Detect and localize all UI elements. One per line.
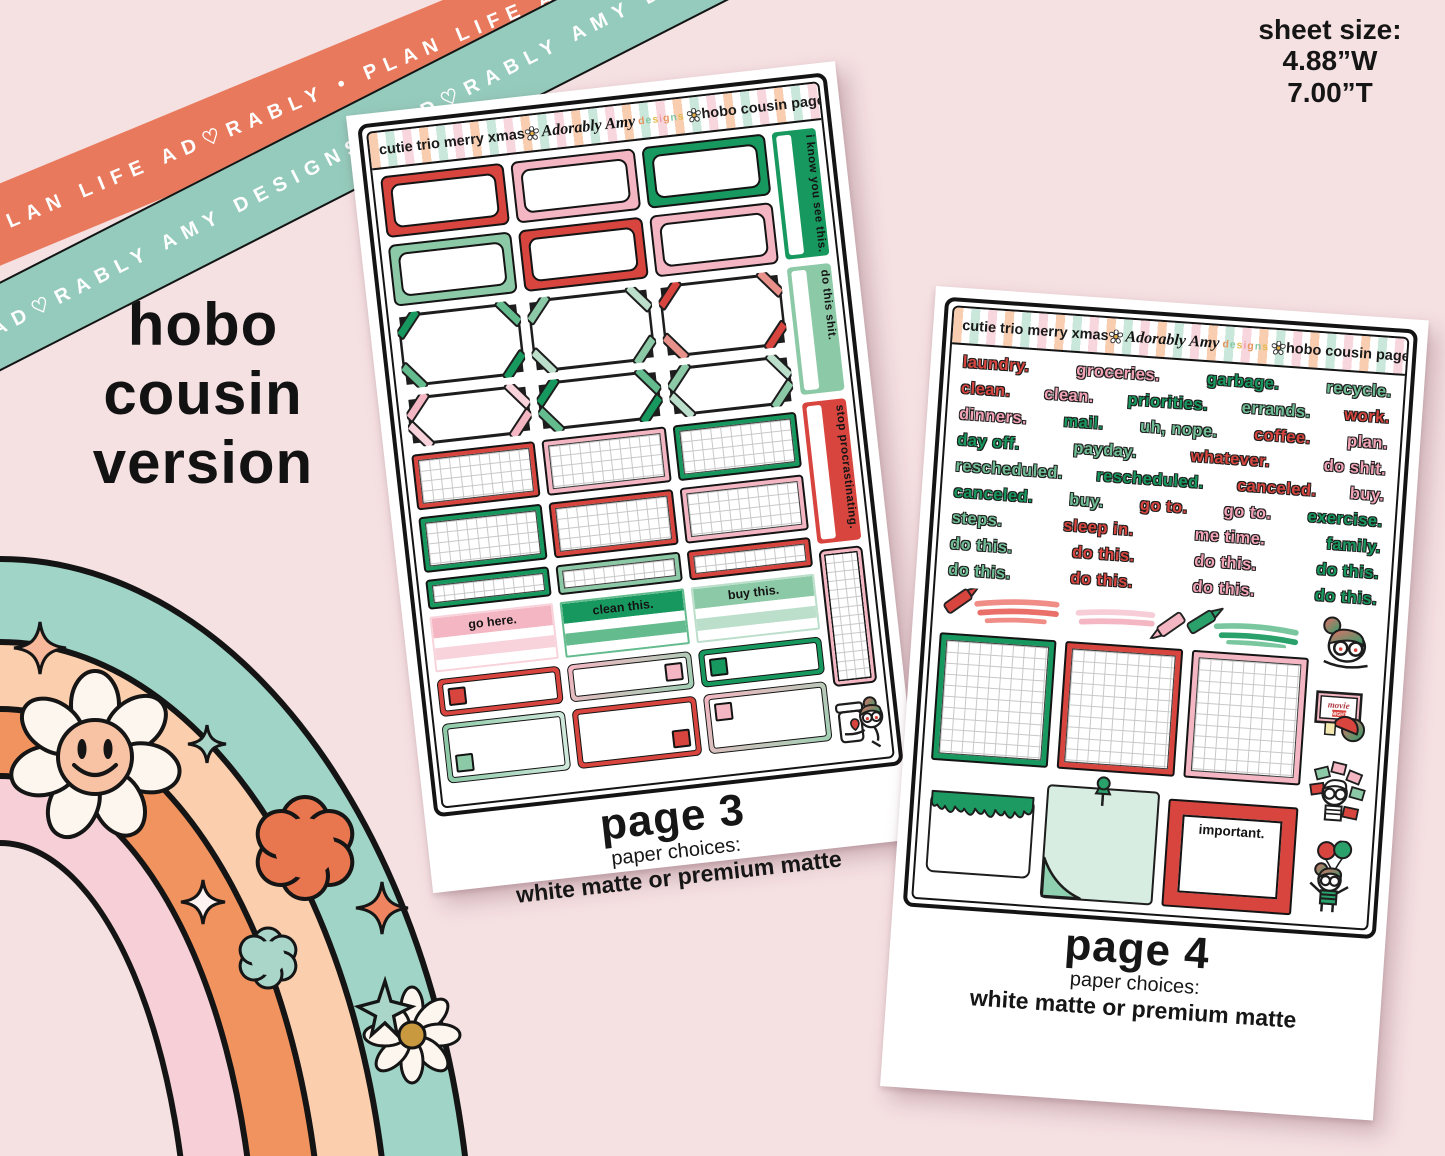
pushpin-icon xyxy=(1089,775,1117,809)
word-sticker: clean. xyxy=(960,379,1011,401)
word-sticker: do this. xyxy=(1316,560,1380,583)
daisy-icon xyxy=(1272,340,1287,355)
photo-corner-box-green xyxy=(395,300,527,389)
word-sticker: do this. xyxy=(949,535,1013,558)
word-sticker: exercise. xyxy=(1307,508,1383,532)
word-sticker: do this. xyxy=(948,561,1012,584)
grid-box-pink xyxy=(679,474,809,544)
checkbox-square xyxy=(713,702,733,722)
side-strip-text: i know you see this. xyxy=(802,128,828,257)
word-sticker: do this. xyxy=(1314,586,1378,609)
grid-box-red xyxy=(549,489,679,559)
word-sticker: family. xyxy=(1326,535,1382,558)
curled-corner xyxy=(1039,856,1084,901)
word-sticker: me time. xyxy=(1194,526,1266,550)
word-sticker: day off. xyxy=(957,431,1021,454)
product-image: PLAN LIFE AD♡RABLY • PLAN LIFE AD♡RABL A… xyxy=(0,0,1445,1156)
daisy-icon xyxy=(524,125,539,140)
word-sticker: do this. xyxy=(1072,543,1136,566)
word-sticker: canceled. xyxy=(953,483,1034,508)
collection-title: cutie trio merry xmas xyxy=(962,317,1109,343)
sheet-size-note: sheet size: 4.88”W 7.00”T xyxy=(1225,14,1435,108)
word-sticker: whatever. xyxy=(1190,447,1271,472)
word-sticker: canceled. xyxy=(1236,477,1317,502)
brand-script-text: Adorably Amy xyxy=(1125,328,1220,353)
word-sticker: errands. xyxy=(1241,399,1311,423)
drip-pocket-box xyxy=(922,768,1039,897)
girl-hugging-cup-sticker xyxy=(826,688,889,756)
movie-night-sticker: movie NIGHT xyxy=(1310,684,1374,750)
quarter-box-green xyxy=(641,133,771,208)
word-sticker: buy. xyxy=(1069,491,1105,512)
word-sticker: clean. xyxy=(1044,385,1095,407)
word-sticker: do this. xyxy=(1070,569,1134,592)
sticky-note-box xyxy=(1039,784,1160,906)
grid-box-red xyxy=(686,537,813,581)
collection-title: cutie trio merry xmas xyxy=(378,126,526,158)
word-sticker: mail. xyxy=(1063,412,1104,434)
balloon-girl-sticker xyxy=(1298,838,1363,918)
checkbox-square xyxy=(455,753,475,773)
page3-label: hobo cousin page 3 xyxy=(701,91,838,122)
side-strip-text: stop procrastinating. xyxy=(833,398,861,540)
page4-label: hobo cousin page 4 xyxy=(1285,340,1409,365)
grid-square-pink xyxy=(1183,650,1309,786)
word-sticker-block: laundry.groceries.garbage.recycle.clean.… xyxy=(935,344,1405,617)
page4-sticker-sheet: cutie trio merry xmas Adorably Amy desig… xyxy=(903,297,1418,940)
checkbox-square xyxy=(708,657,728,677)
grid-box-pink xyxy=(542,426,672,496)
grid-strip-pink xyxy=(821,547,876,685)
side-strip: stop procrastinating. xyxy=(802,398,862,544)
word-sticker: work. xyxy=(1344,406,1391,428)
page4-card: cutie trio merry xmas Adorably Amy desig… xyxy=(880,286,1429,1121)
checklist-box-mint xyxy=(441,710,571,783)
word-sticker: do this. xyxy=(1194,552,1258,575)
word-sticker: sleep in. xyxy=(1063,516,1135,540)
brand-designs-text: designs xyxy=(1222,338,1269,353)
quarter-box-pink xyxy=(649,202,779,277)
grid-box-green xyxy=(672,412,802,482)
quarter-box-pink xyxy=(510,148,640,223)
photo-corner-box-green xyxy=(535,368,664,434)
daisy-icon xyxy=(687,107,702,122)
word-sticker: go to. xyxy=(1223,502,1272,524)
word-sticker: priorities. xyxy=(1127,391,1209,416)
checkbox-square xyxy=(671,729,691,749)
grid-square-red xyxy=(1057,641,1183,777)
checklist-box-pink xyxy=(702,681,832,754)
photo-corner-box-mint xyxy=(526,285,658,374)
word-sticker: steps. xyxy=(951,509,1003,531)
word-sticker: payday. xyxy=(1073,439,1138,462)
grid-square-green xyxy=(931,632,1057,768)
sheet-size-label: sheet size: xyxy=(1225,14,1435,45)
daisy-icon xyxy=(1108,329,1123,344)
side-strip-text: do this shit. xyxy=(817,263,843,392)
word-sticker: laundry. xyxy=(962,353,1030,377)
important-frame-box: important. xyxy=(1161,798,1298,915)
grid-box-mint xyxy=(556,552,683,596)
svg-text:movie: movie xyxy=(1327,700,1350,712)
pink-marker-doodle xyxy=(1077,605,1187,646)
word-sticker: buy. xyxy=(1349,484,1385,505)
label-box: buy this. xyxy=(690,574,820,644)
brand-script-text: Adorably Amy xyxy=(541,112,636,140)
word-sticker: do shit. xyxy=(1323,457,1387,480)
photo-corner-box-pink xyxy=(405,382,534,448)
word-sticker: garbage. xyxy=(1206,370,1280,394)
checklist-box-red xyxy=(572,696,702,769)
label-box: clean this. xyxy=(560,588,690,658)
word-sticker: uh, nope. xyxy=(1139,418,1218,442)
grid-box-green xyxy=(418,504,548,574)
grid-square-row xyxy=(931,632,1309,785)
checklist-box-green xyxy=(697,636,825,688)
word-sticker: plan. xyxy=(1346,432,1388,454)
red-marker-doodle xyxy=(942,586,1057,625)
word-sticker: go to. xyxy=(1139,496,1188,518)
brand-designs-text: designs xyxy=(637,110,685,127)
side-strip: i know you see this. xyxy=(772,128,830,260)
checklist-box-red xyxy=(436,666,564,718)
word-sticker: groceries. xyxy=(1076,361,1161,386)
checkbox-square xyxy=(447,686,467,706)
grid-box-red xyxy=(411,441,541,511)
quarter-box-red xyxy=(380,163,510,238)
photo-corner-box-red xyxy=(656,271,788,360)
word-sticker: recycle. xyxy=(1326,378,1393,402)
grid-box-green xyxy=(425,566,552,610)
peeking-girl-sticker xyxy=(1315,613,1379,675)
quarter-box-mint xyxy=(388,231,518,306)
side-strip: do this shit. xyxy=(787,263,845,395)
word-sticker: dinners. xyxy=(958,405,1027,429)
brand-logo: Adorably Amy designs xyxy=(1108,327,1287,357)
important-label: important. xyxy=(1177,814,1282,899)
character-sticker-column: movie NIGHT xyxy=(1297,612,1380,920)
sheet-size-width: 4.88”W xyxy=(1225,45,1435,76)
photo-corner-box-mint xyxy=(666,353,795,419)
word-sticker: coffee. xyxy=(1253,426,1311,449)
mail-girl-sticker xyxy=(1304,759,1368,829)
checkbox-square xyxy=(664,662,684,682)
page3-card: cutie trio merry xmas Adorably Amy desig… xyxy=(346,61,922,893)
sheet-size-height: 7.00”T xyxy=(1225,77,1435,108)
checklist-box-pink xyxy=(567,651,695,703)
page3-sticker-sheet: cutie trio merry xmas Adorably Amy desig… xyxy=(357,72,904,817)
word-sticker: do this. xyxy=(1192,578,1256,601)
label-box: go here. xyxy=(429,603,559,673)
quarter-box-red xyxy=(518,217,648,292)
